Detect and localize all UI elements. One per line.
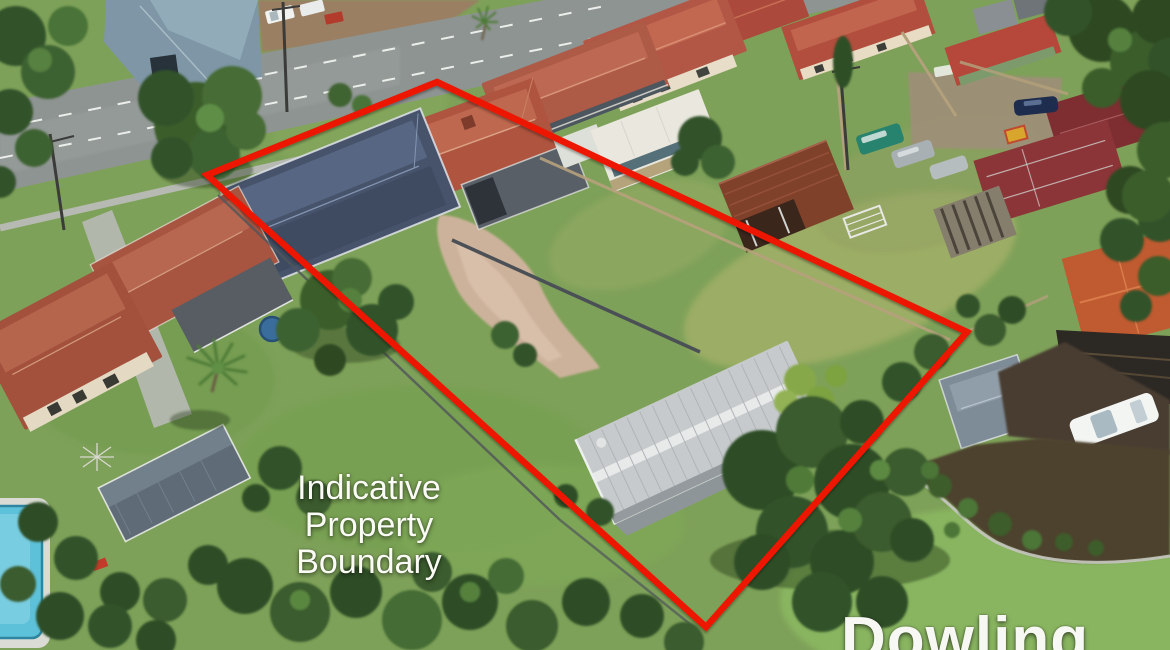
- boundary-note-line: Property: [296, 507, 442, 544]
- boundary-note-line: Boundary: [296, 544, 442, 581]
- aerial-photo: Indicative Property Boundary Dowling: [0, 0, 1170, 650]
- boundary-note-label: Indicative Property Boundary: [296, 470, 442, 581]
- aerial-photo-scene: [0, 0, 1170, 650]
- street-name-label: Dowling: [841, 604, 1089, 650]
- boundary-note-line: Indicative: [296, 470, 442, 507]
